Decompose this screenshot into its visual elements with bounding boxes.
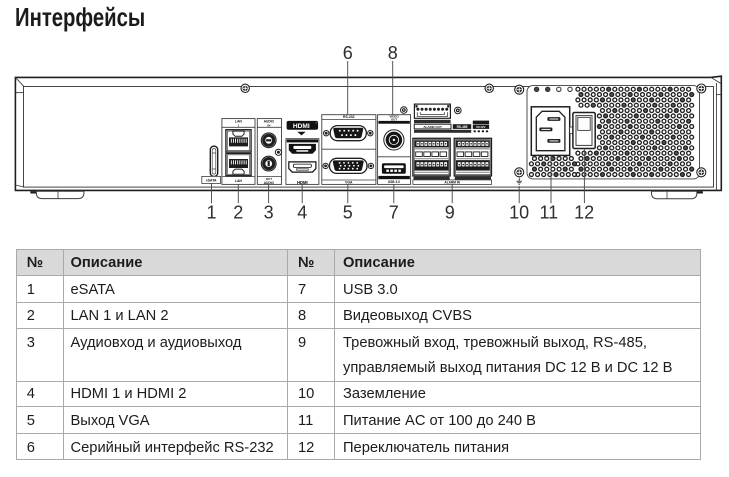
- svg-text:1: 1: [206, 202, 216, 222]
- svg-text:eSATA: eSATA: [206, 179, 217, 183]
- svg-text:HDMI: HDMI: [293, 123, 310, 130]
- svg-text:9: 9: [445, 202, 455, 222]
- svg-text:ALARM IN: ALARM IN: [444, 181, 460, 185]
- svg-text:RS-485: RS-485: [457, 125, 468, 129]
- svg-text:12: 12: [574, 202, 594, 222]
- svg-text:4: 4: [297, 202, 307, 222]
- svg-text:5: 5: [343, 202, 353, 222]
- svg-text:AUDIO: AUDIO: [264, 181, 275, 185]
- svg-text:6: 6: [343, 43, 353, 63]
- svg-text:11: 11: [539, 202, 558, 222]
- svg-text:3: 3: [264, 202, 274, 222]
- svg-text:ALARM OUT: ALARM OUT: [423, 125, 442, 129]
- svg-text:2: 2: [233, 202, 243, 222]
- svg-text:8: 8: [388, 43, 398, 63]
- svg-text:RS-232: RS-232: [343, 115, 355, 119]
- svg-text:USB 3.0: USB 3.0: [388, 180, 400, 184]
- svg-text:DC12V: DC12V: [476, 125, 485, 129]
- svg-text:LAN: LAN: [235, 179, 243, 183]
- svg-text:HDMI: HDMI: [297, 180, 308, 185]
- svg-text:10: 10: [509, 202, 529, 222]
- svg-text:VGA: VGA: [345, 181, 353, 185]
- svg-text:IN: IN: [267, 123, 270, 127]
- svg-text:7: 7: [389, 202, 399, 222]
